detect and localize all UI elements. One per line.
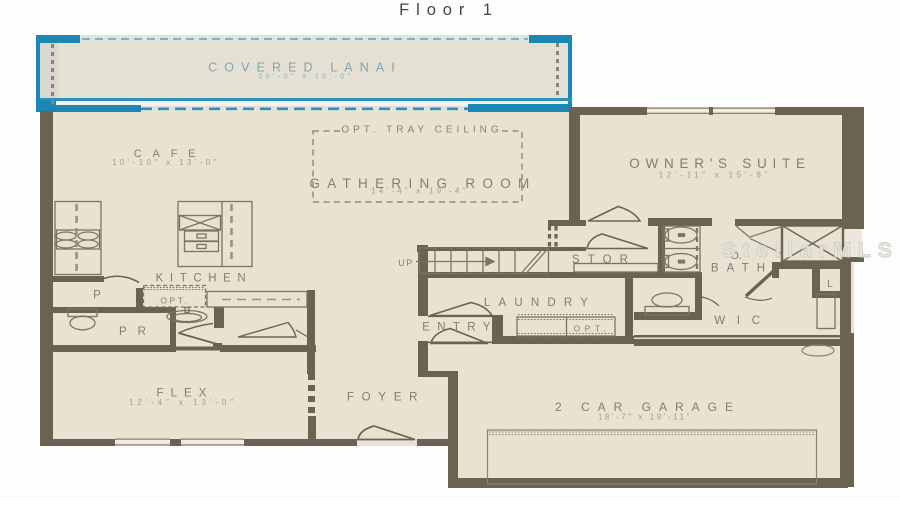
svg-text:KITCHEN: KITCHEN: [156, 273, 253, 285]
svg-text:BATH: BATH: [711, 263, 773, 275]
svg-text:PR: PR: [119, 326, 157, 338]
svg-text:StellarMLS: StellarMLS: [721, 238, 898, 262]
svg-text:STOR: STOR: [572, 254, 636, 266]
svg-text:12'-4" x 13'-0": 12'-4" x 13'-0": [129, 398, 237, 407]
svg-text:UP: UP: [398, 258, 414, 268]
svg-text:Floor 1: Floor 1: [399, 1, 499, 19]
svg-text:OPT.: OPT.: [160, 296, 189, 306]
svg-text:ENTRY: ENTRY: [422, 322, 498, 334]
svg-text:OPT.: OPT.: [574, 324, 611, 334]
svg-text:10'-10" x 13'-0": 10'-10" x 13'-0": [112, 158, 220, 167]
svg-text:OPT. TRAY CEILING: OPT. TRAY CEILING: [341, 125, 502, 136]
svg-text:12'-11" x 15'-8": 12'-11" x 15'-8": [659, 171, 772, 180]
svg-text:14'-4" x 19'-4": 14'-4" x 19'-4": [371, 187, 468, 196]
svg-text:LAUNDRY: LAUNDRY: [484, 297, 596, 309]
svg-text:FOYER: FOYER: [347, 392, 425, 404]
svg-text:P: P: [93, 290, 101, 302]
svg-text:18'-7" x 19'-11": 18'-7" x 19'-11": [598, 413, 692, 422]
svg-text:OWNER'S SUITE: OWNER'S SUITE: [629, 156, 811, 171]
svg-text:L: L: [827, 279, 833, 290]
svg-text:WIC: WIC: [714, 315, 772, 327]
svg-text:26'-0" x 10'-0": 26'-0" x 10'-0": [258, 72, 353, 81]
